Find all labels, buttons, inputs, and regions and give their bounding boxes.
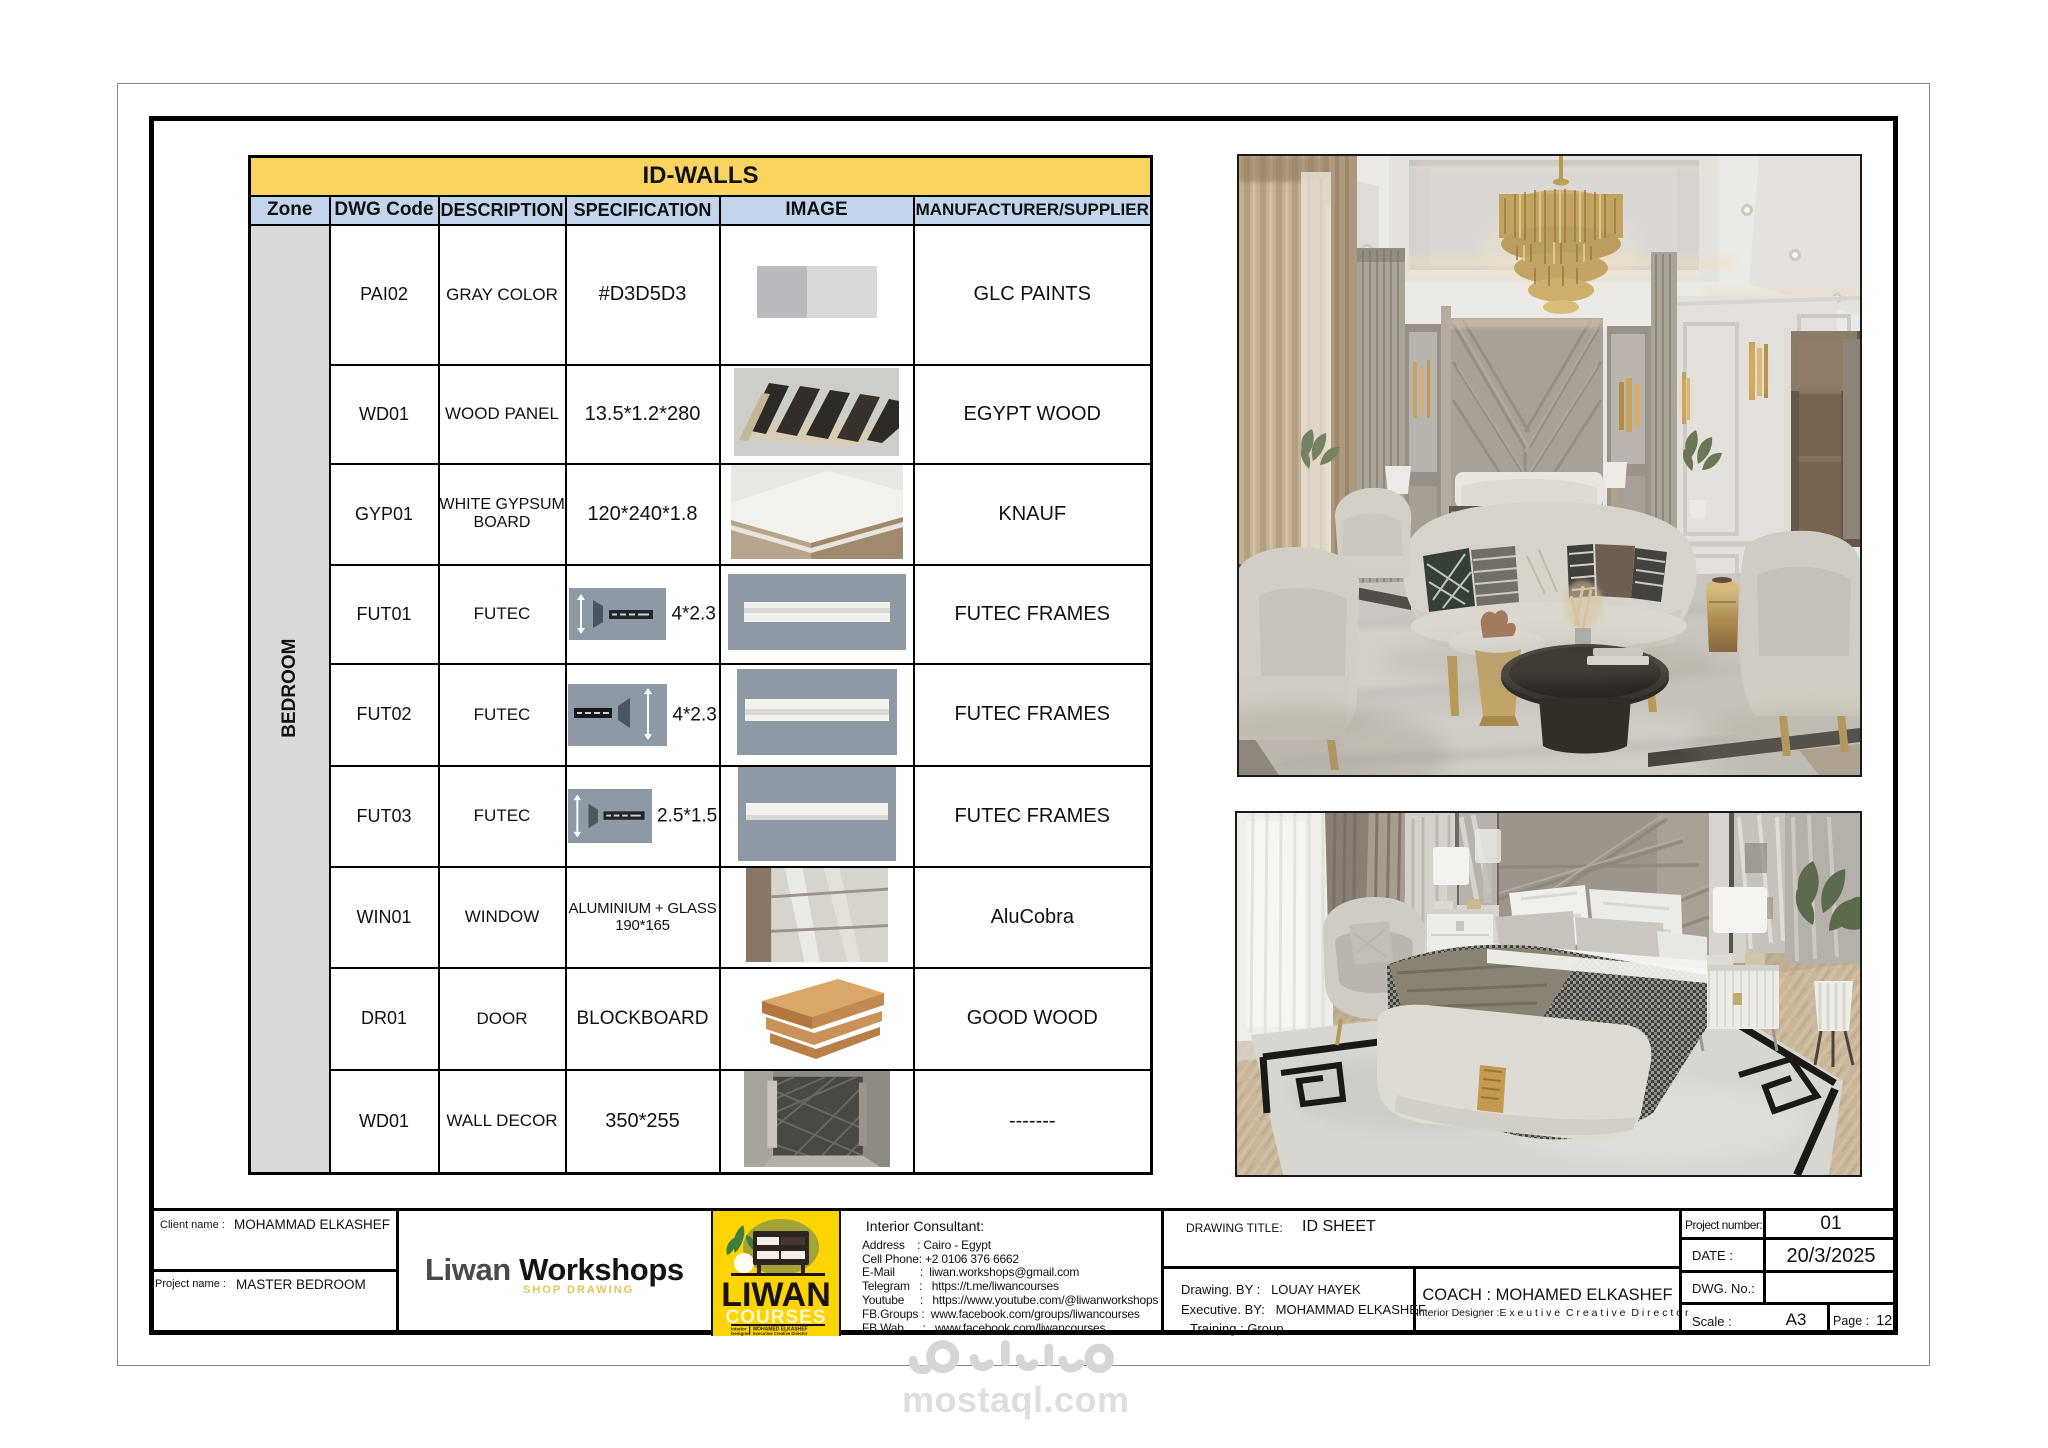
svg-text:Executive Creative Director: Executive Creative Director — [753, 1331, 808, 1336]
svg-text:Designer: Designer — [731, 1331, 751, 1336]
